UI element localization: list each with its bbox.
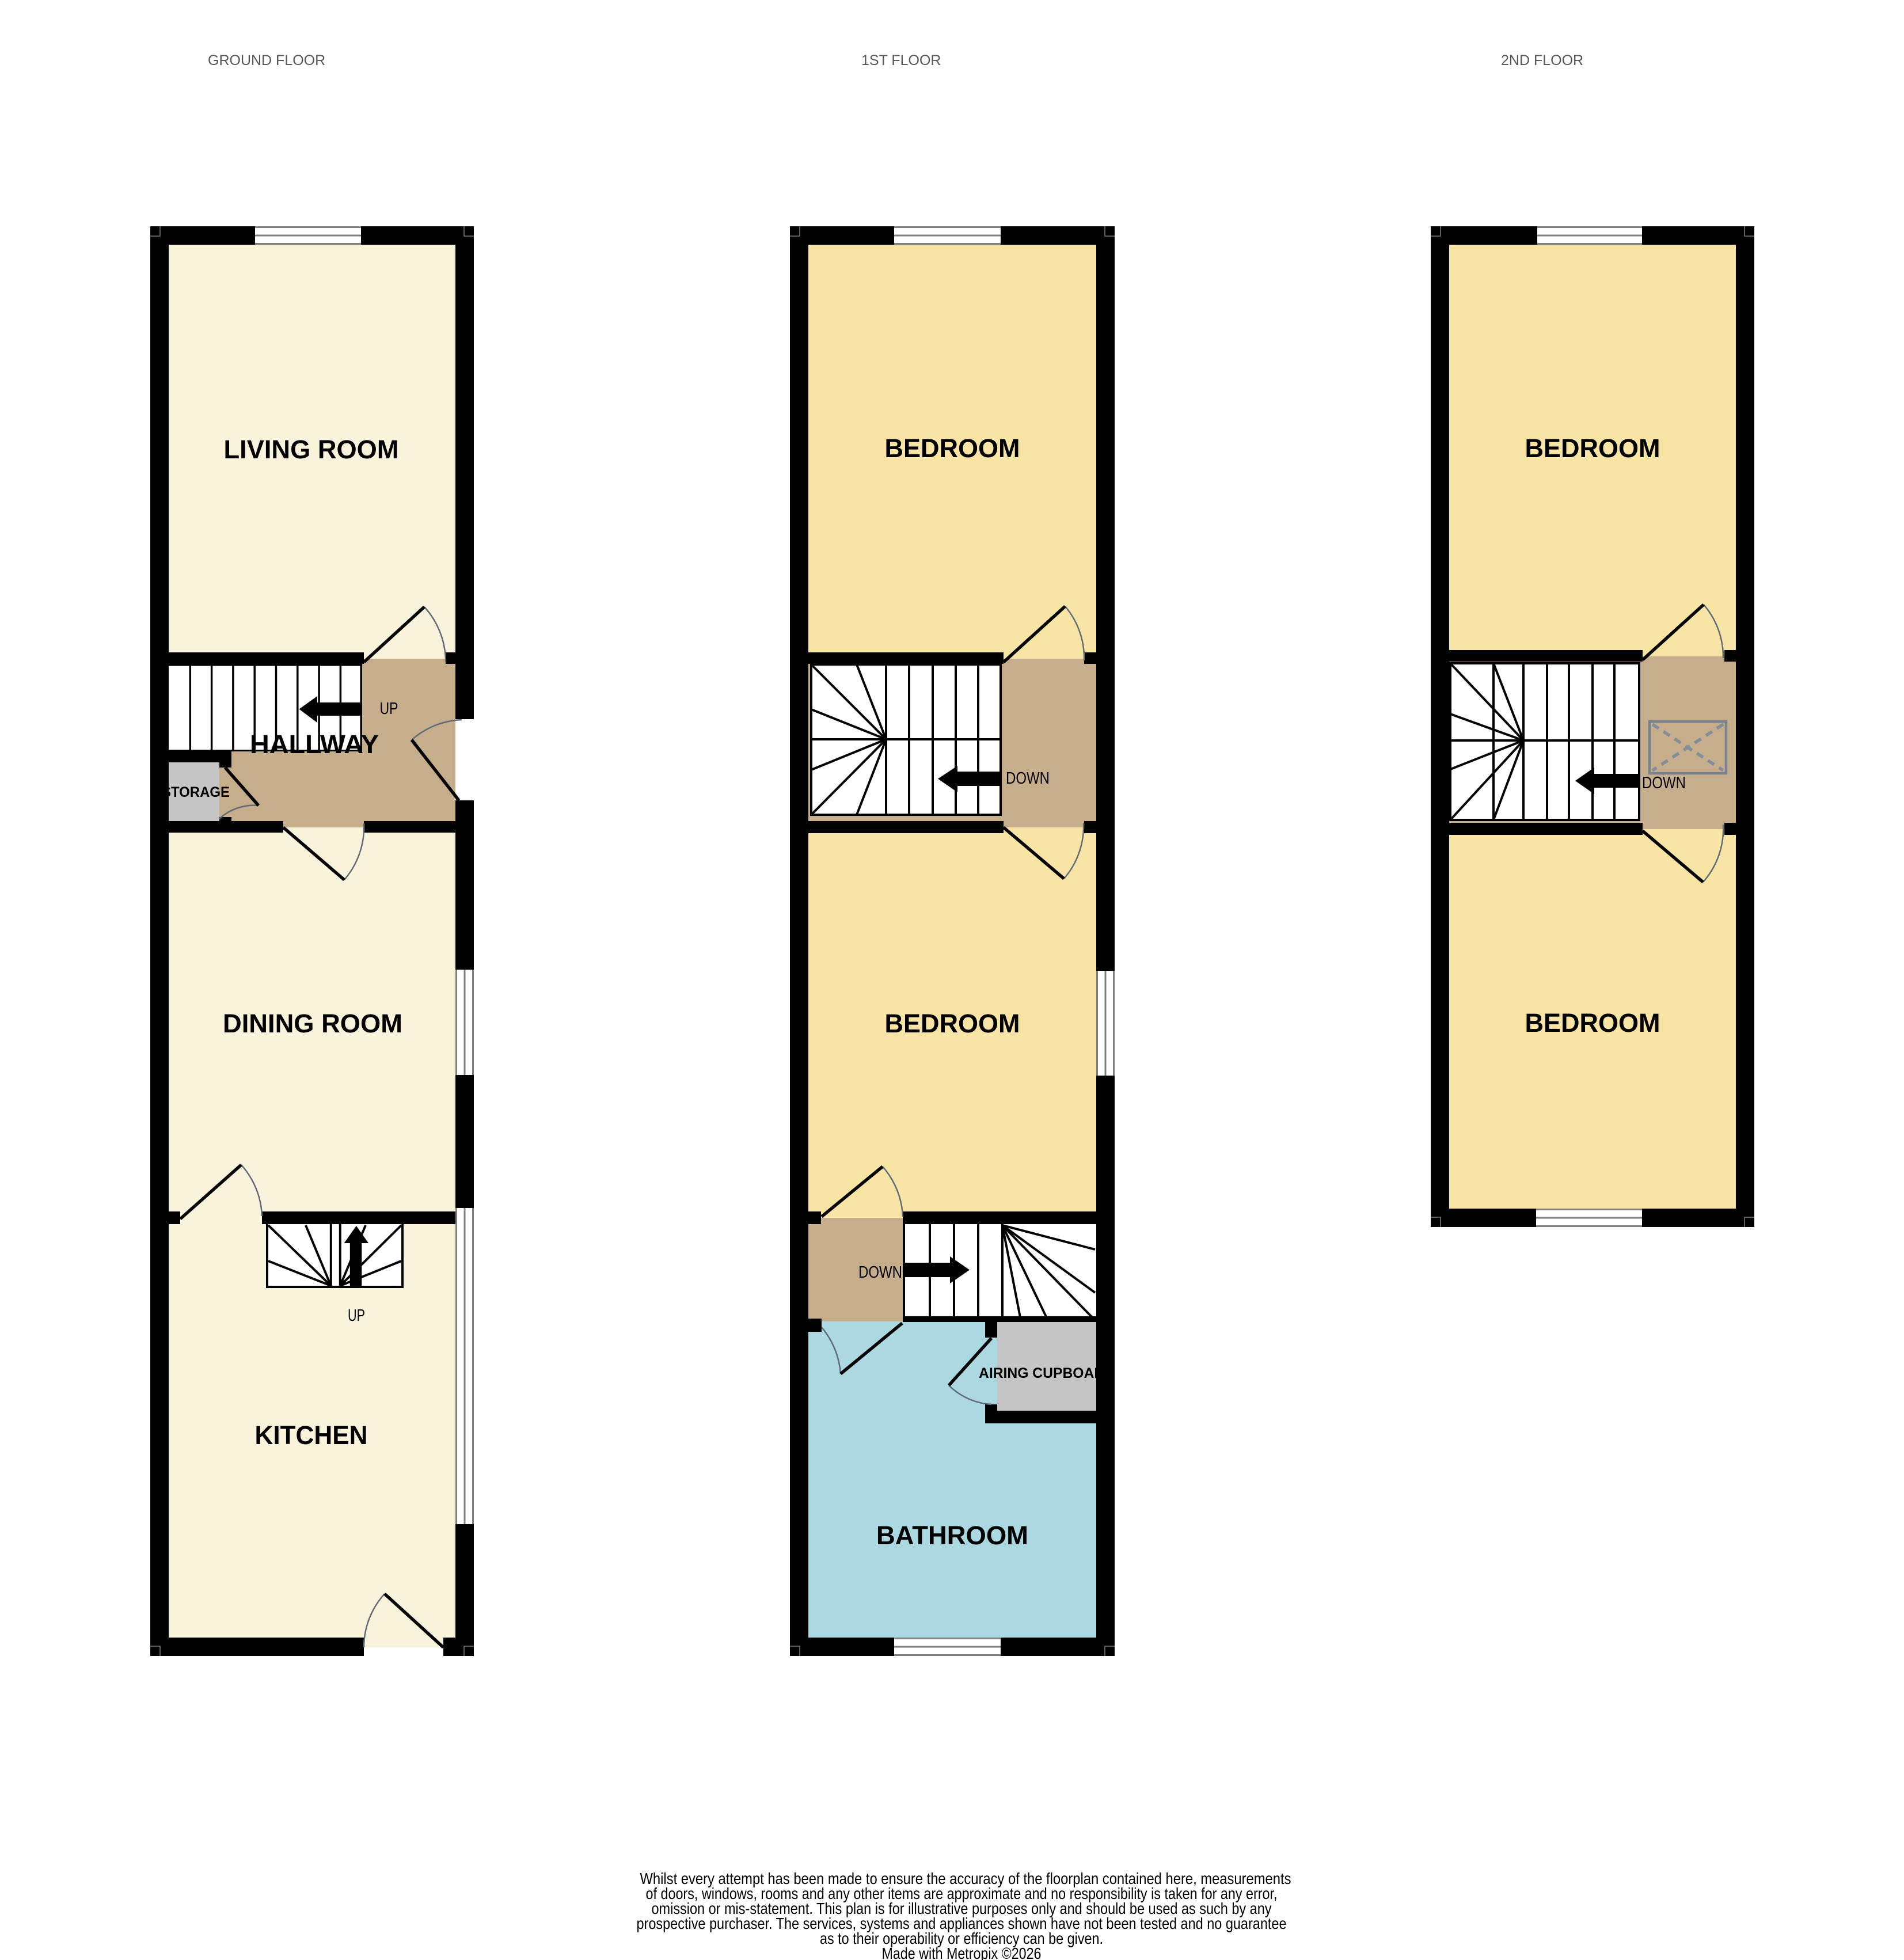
svg-text:2ND FLOOR: 2ND FLOOR (1501, 52, 1583, 69)
svg-text:LIVING ROOM: LIVING ROOM (224, 435, 399, 464)
svg-text:BEDROOM: BEDROOM (1525, 434, 1660, 463)
svg-text:BEDROOM: BEDROOM (885, 434, 1020, 463)
svg-text:DINING ROOM: DINING ROOM (223, 1009, 402, 1038)
svg-text:KITCHEN: KITCHEN (255, 1420, 368, 1450)
svg-text:1ST FLOOR: 1ST FLOOR (861, 52, 941, 69)
svg-text:DOWN: DOWN (1642, 774, 1686, 792)
svg-text:UP: UP (380, 700, 398, 718)
svg-text:BEDROOM: BEDROOM (885, 1009, 1020, 1038)
svg-text:DOWN: DOWN (1006, 769, 1050, 788)
svg-text:Made with Metropix ©2026: Made with Metropix ©2026 (882, 1944, 1042, 1960)
svg-text:AIRING CUPBOARD: AIRING CUPBOARD (979, 1365, 1115, 1381)
svg-text:BEDROOM: BEDROOM (1525, 1008, 1660, 1038)
svg-text:UP: UP (348, 1306, 365, 1325)
svg-text:DOWN: DOWN (858, 1263, 902, 1282)
svg-text:STORAGE: STORAGE (162, 784, 230, 800)
svg-text:GROUND FLOOR: GROUND FLOOR (208, 52, 325, 69)
svg-text:HALLWAY: HALLWAY (250, 730, 379, 759)
svg-text:BATHROOM: BATHROOM (876, 1521, 1028, 1550)
